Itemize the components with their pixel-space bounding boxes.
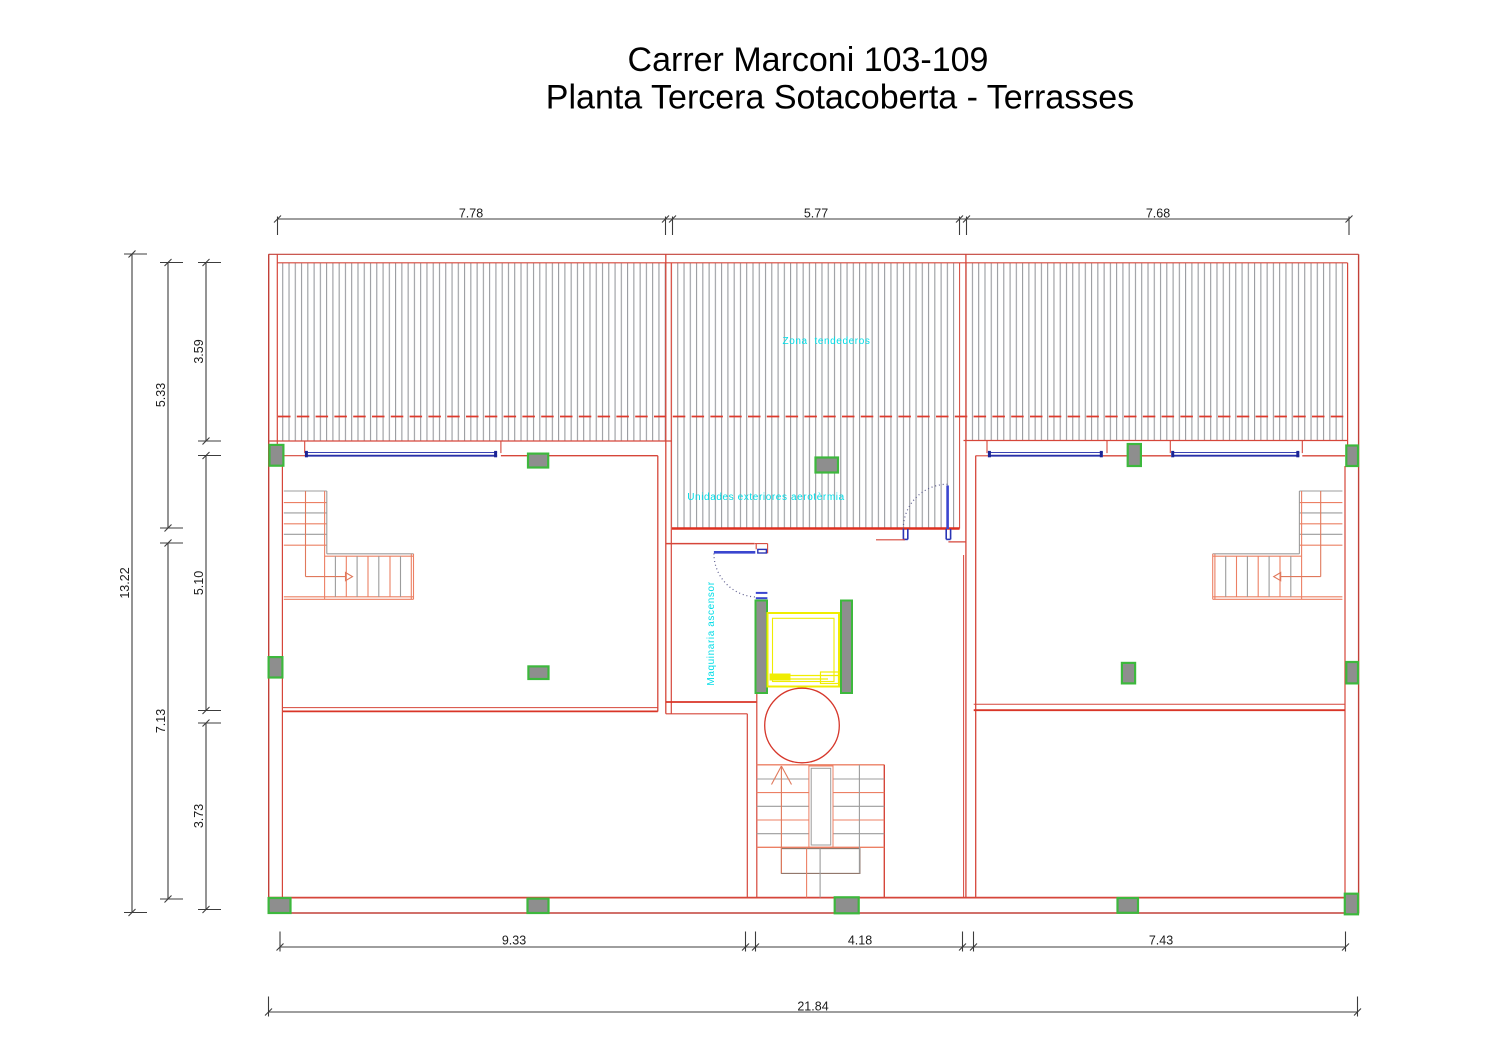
svg-text:7.78: 7.78	[459, 207, 483, 221]
svg-text:5.10: 5.10	[192, 571, 206, 595]
svg-text:5.33: 5.33	[154, 383, 168, 407]
svg-text:Zona tendederos: Zona tendederos	[783, 336, 871, 347]
svg-text:9.33: 9.33	[502, 934, 526, 948]
svg-text:Carrer Marconi 103-109: Carrer Marconi 103-109	[628, 41, 989, 79]
svg-text:Maquinaria ascensor: Maquinaria ascensor	[706, 581, 717, 685]
svg-text:7.43: 7.43	[1149, 934, 1173, 948]
svg-text:21.84: 21.84	[797, 1000, 828, 1014]
svg-text:3.59: 3.59	[192, 339, 206, 363]
svg-text:5.77: 5.77	[804, 207, 828, 221]
svg-text:7.13: 7.13	[154, 709, 168, 733]
svg-text:4.18: 4.18	[848, 934, 872, 948]
svg-text:3.73: 3.73	[192, 804, 206, 828]
svg-text:13.22: 13.22	[118, 567, 132, 598]
svg-text:7.68: 7.68	[1146, 207, 1170, 221]
svg-text:Planta Tercera Sotacoberta - T: Planta Tercera Sotacoberta - Terrasses	[546, 79, 1134, 117]
svg-text:Unidades exteriores aerotèrmia: Unidades exteriores aerotèrmia	[687, 492, 845, 503]
